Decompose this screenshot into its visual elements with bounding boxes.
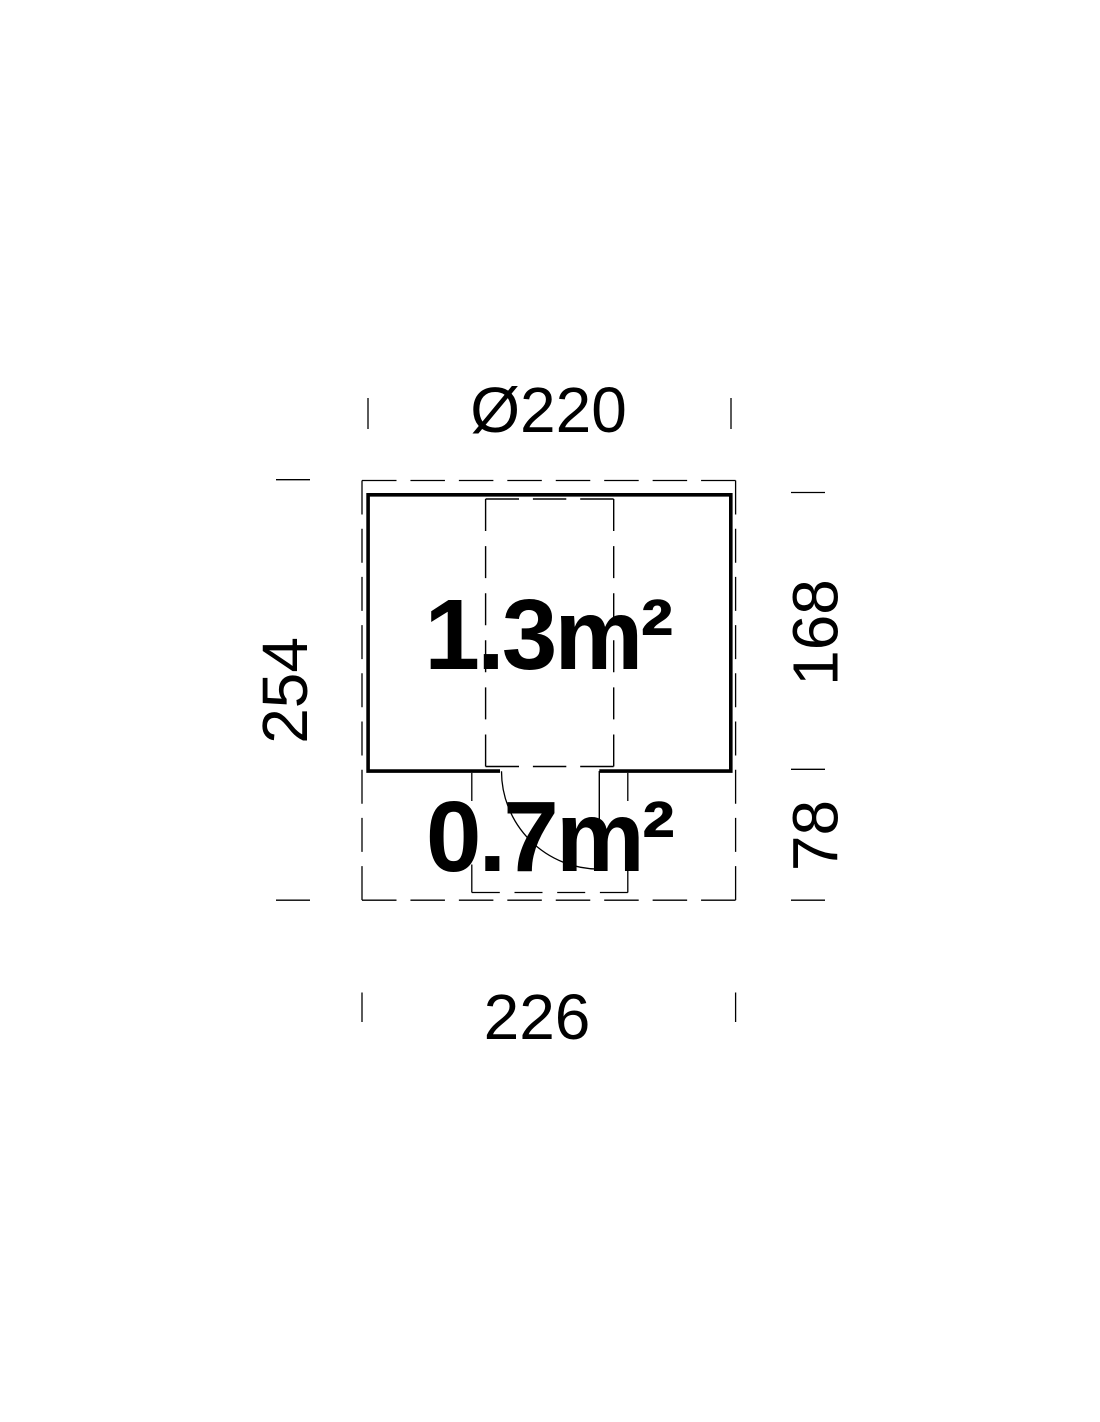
svg-text:168: 168 (780, 579, 852, 686)
svg-text:0.7m²: 0.7m² (426, 781, 674, 893)
svg-text:226: 226 (484, 981, 591, 1053)
svg-text:Ø220: Ø220 (470, 374, 627, 446)
svg-text:78: 78 (780, 800, 852, 871)
svg-text:254: 254 (249, 637, 321, 744)
svg-text:1.3m²: 1.3m² (424, 579, 672, 691)
